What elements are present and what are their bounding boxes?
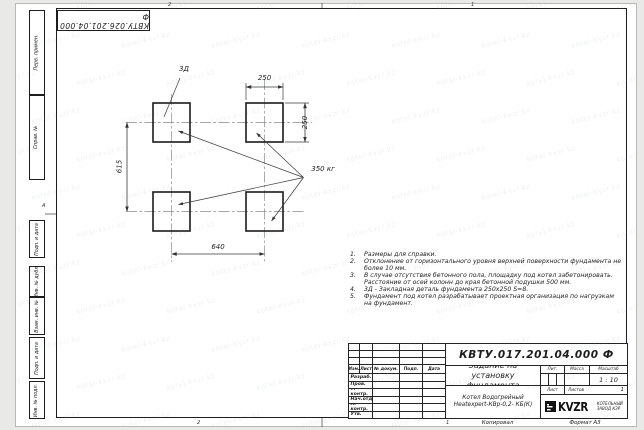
row-utv: Утв. (349, 412, 372, 419)
row-t-kontr: Т. контр. (349, 389, 372, 396)
margin-box-podp-data-1: Подп. и дата (29, 220, 45, 258)
mass-header: Масса (565, 366, 589, 373)
format-label: Формат А3 (550, 420, 620, 426)
sheets-cell: Листов 1 (565, 386, 627, 394)
row-razrab: Разраб. (349, 374, 372, 381)
drawing-title: Задание на установку фундамента (446, 366, 540, 385)
kvzr-logo-subtext: КОТЕЛЬНЫЙ ЗАВОД КЗР (597, 402, 623, 412)
dim-label-pad-height: 250 (301, 110, 312, 135)
row-n-kontr: Н. контр. (349, 404, 372, 411)
notes-list: 1.Размеры для справки. 2.Отклонение от г… (350, 251, 622, 307)
note-item: 5.Фундамент под котел разрабатывает прое… (350, 293, 622, 307)
product-name: Котел Водогрейный Heatexpert-КВр-0,2- КБ… (446, 386, 540, 418)
top-stamp-number: КВТУ.026.201.04.000 Ф (58, 12, 149, 30)
margin-box-vzam-inv: Взам. инв. № (29, 297, 45, 335)
note-item: 2.Отклонение от горизонтального уровня в… (350, 258, 622, 272)
title-block-main: КВТУ.017.201.04.000 Ф Задание на установ… (445, 343, 628, 419)
col-header-izm: Изм. (349, 365, 359, 373)
dim-label-span-vertical: 615 (116, 152, 127, 182)
margin-box-sprav-no: Справ. № (29, 95, 45, 180)
margin-box-perv-primen: Перв. примен. (29, 10, 45, 95)
sheets-count: 1 (621, 387, 625, 393)
margin-box-inv-podl: Инв. № подл. (29, 381, 45, 419)
row-prov: Пров. (349, 382, 372, 389)
zone-label-top-right: 1 (471, 2, 474, 8)
col-header-podp: Подп. (400, 365, 422, 373)
zone-label-top-left: 2 (168, 2, 171, 8)
kvzr-logo-word: KVZR (558, 399, 588, 414)
note-item: 4.3Д - Закладная деталь фундамента 250х2… (350, 286, 622, 293)
margin-box-podp-data-2: Подп. и дата (29, 337, 45, 379)
scale-value: 1 : 10 (590, 374, 627, 385)
margin-box-inv-dubl: Инв. № дубл. (29, 266, 45, 297)
document-number: КВТУ.017.201.04.000 Ф (446, 344, 627, 365)
zone-label-bottom-left: 2 (197, 420, 200, 426)
col-header-data: Дата (423, 365, 445, 373)
kvzr-logo-icon (545, 401, 556, 412)
load-weight-label: 350 кг (306, 165, 340, 173)
scale-header: Масштаб (590, 366, 627, 373)
title-block-signature-table: Изм. Лист № докум. Подп. Дата Разраб. Пр… (348, 343, 446, 419)
lit-header: Лит. (541, 366, 564, 373)
drawing-sheet-page: { "sheet": { "top_stamp": "КВТУ.026.201.… (0, 0, 644, 430)
embed-detail-label: 3Д (175, 65, 193, 73)
col-header-doc: № докум. (373, 365, 399, 373)
zone-label-bottom-right: 1 (446, 420, 449, 426)
top-stamp-box: КВТУ.026.201.04.000 Ф (57, 10, 150, 31)
dim-label-span-horizontal: 640 (203, 243, 233, 251)
zone-label-left-row: А (42, 203, 46, 209)
note-item: 3.В случае отсутствия бетонного пола, пл… (350, 272, 622, 286)
sheet-cell: Лист (541, 386, 564, 394)
company-logo: KVZR КОТЕЛЬНЫЙ ЗАВОД КЗР (541, 395, 627, 418)
copied-label: Копировал (460, 420, 535, 426)
dim-label-pad-width: 250 (250, 74, 279, 82)
row-nach-otd: Нач.отд. (349, 397, 372, 404)
col-header-list: Лист (360, 365, 372, 373)
note-item: 1.Размеры для справки. (350, 251, 622, 258)
